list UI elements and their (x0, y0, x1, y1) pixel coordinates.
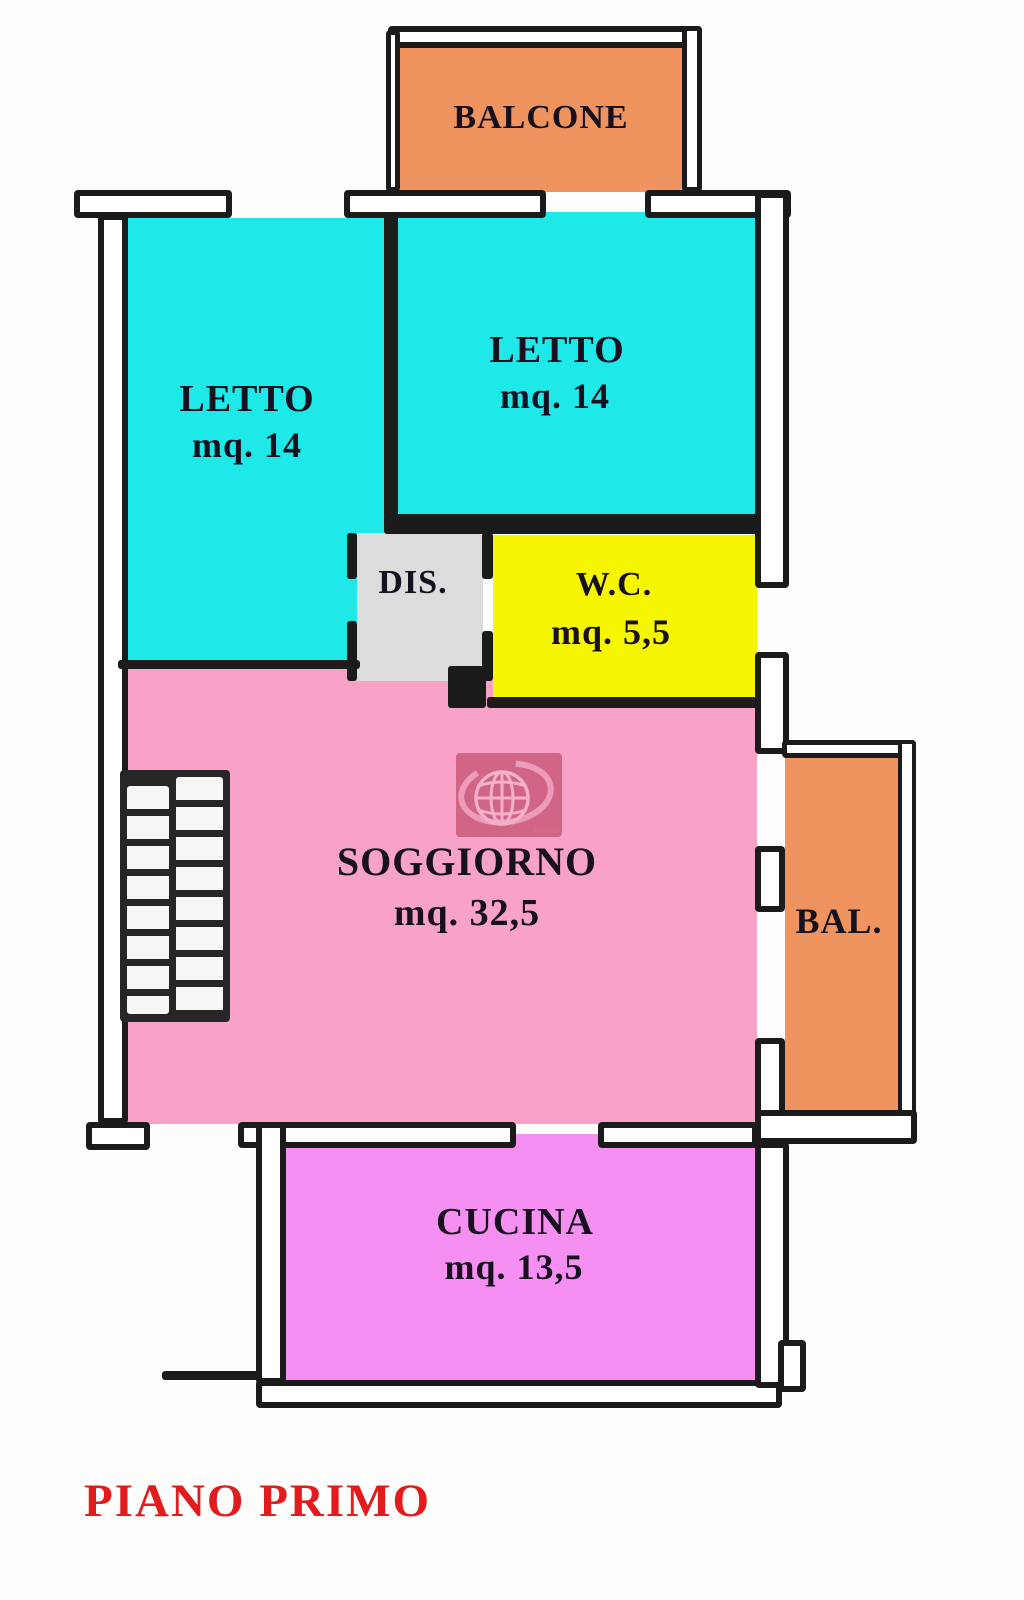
room-label-bal: BAL. (795, 903, 882, 939)
wall (344, 190, 546, 218)
wall (256, 1122, 286, 1384)
room-label-wc: W.C. (576, 568, 652, 602)
wall (74, 190, 232, 218)
wall (778, 1340, 806, 1392)
floor-title: PIANO PRIMO (84, 1478, 431, 1525)
wall (782, 740, 916, 758)
wall (388, 26, 702, 48)
room-dis (357, 533, 483, 681)
room-label-balcone: BALCONE (453, 101, 628, 135)
room-area-letto-ne: mq. 14 (500, 378, 610, 414)
wall (755, 1110, 917, 1144)
wall (386, 30, 400, 192)
wall (487, 697, 757, 708)
wall (755, 192, 789, 588)
wall (384, 212, 398, 518)
wall (482, 533, 493, 579)
wall (347, 533, 357, 579)
room-label-letto-ne: LETTO (489, 331, 624, 369)
agency-logo-watermark: GLOBO (456, 753, 562, 837)
wall (755, 652, 789, 754)
watermark-text: GLOBO (534, 828, 559, 835)
wall (755, 1038, 785, 1116)
wall (384, 514, 758, 534)
room-area-cucina: mq. 13,5 (444, 1249, 583, 1285)
wall (347, 621, 357, 681)
staircase (120, 770, 230, 1022)
wall (598, 1122, 758, 1148)
wall (448, 666, 486, 708)
floor-plan: GLOBO BALCONE LETTO mq. 14 LETTO mq. 14 … (0, 0, 1024, 1600)
room-label-cucina: CUCINA (436, 1203, 594, 1241)
room-label-soggiorno: SOGGIORNO (337, 842, 597, 882)
wall (162, 1371, 262, 1380)
room-label-dis: DIS. (378, 566, 447, 600)
wall (755, 846, 785, 912)
room-area-soggiorno: mq. 32,5 (394, 894, 540, 932)
room-area-wc: mq. 5,5 (551, 614, 671, 650)
wall (682, 26, 702, 192)
wall (86, 1122, 150, 1150)
wall (256, 1380, 782, 1408)
stair-steps (127, 786, 169, 1014)
wall (898, 740, 916, 1116)
stair-steps (176, 777, 223, 1015)
wall (118, 660, 360, 669)
room-label-letto-nw: LETTO (179, 380, 314, 418)
room-area-letto-nw: mq. 14 (192, 427, 302, 463)
